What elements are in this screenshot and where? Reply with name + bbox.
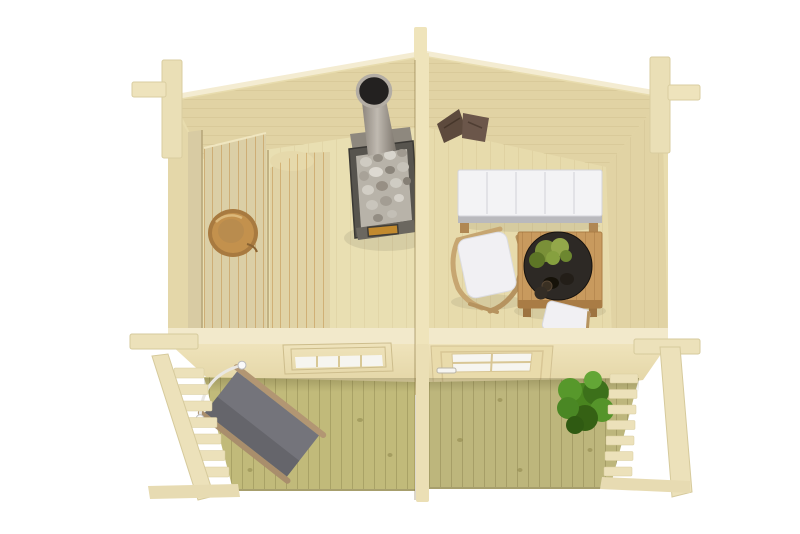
front-left-log-end (130, 334, 198, 349)
divider-wall (414, 27, 429, 502)
render-canvas (0, 0, 800, 534)
top-left-post (162, 60, 182, 158)
stove-fire-glass (368, 225, 399, 237)
sofa-leg-left (460, 222, 469, 233)
top-right-log-end (668, 85, 700, 100)
top-left-log-end (132, 82, 166, 97)
towel-right (462, 113, 489, 142)
divider-deck-beam (416, 344, 429, 502)
cabin-topdown-render (0, 0, 800, 534)
bucket-water (218, 219, 244, 243)
bench-sofa (458, 170, 602, 233)
bench-backrest (188, 130, 202, 330)
top-right-post (650, 57, 670, 153)
sofa-cushions (458, 170, 602, 216)
bench-lower-seams (270, 152, 330, 330)
bowl-knob (535, 287, 548, 300)
sofa-leg-right (589, 222, 598, 233)
railing-left-bottom-rail (148, 484, 240, 499)
door-handle (437, 368, 456, 373)
divider-wall-body (415, 53, 429, 344)
sauna-bucket (208, 209, 258, 257)
chimney-mouth (358, 76, 391, 107)
